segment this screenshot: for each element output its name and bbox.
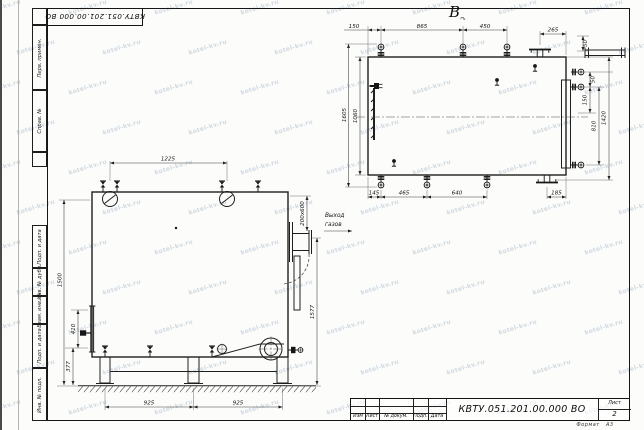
small-valve-icon: [533, 64, 537, 71]
dim-label: 925: [144, 400, 155, 406]
title-block: Изм Лист № докум. Подп. Дата КВТУ.051.20…: [350, 398, 630, 421]
dim-label: 50: [591, 76, 597, 84]
dim-label: 265: [548, 28, 559, 34]
small-valve-icon: [392, 159, 396, 166]
dim-label: 450: [480, 24, 491, 30]
dim-label: 200x600: [300, 201, 306, 226]
dim-label: 1420: [602, 110, 608, 125]
dim-label: 465: [399, 191, 410, 197]
burner-flange-icon: [259, 337, 284, 362]
drawing-sheet: kotel-kv.rukotel-kv.rukotel-kv.rukotel-k…: [0, 0, 644, 430]
valve-icon: [424, 175, 431, 188]
front-view-fittings: [100, 181, 303, 362]
dim-label: 145: [369, 191, 380, 197]
top-view-fittings: [370, 44, 584, 188]
valve-icon: [209, 346, 215, 357]
dim-label: 150: [583, 94, 589, 105]
dim-label: 925: [233, 400, 244, 406]
tb-header-izm: Изм: [351, 414, 365, 419]
gauge-nozzle-icon: [80, 330, 91, 335]
title-block-row-line: [351, 406, 446, 407]
valve-icon: [378, 44, 385, 57]
dim-label: 810: [592, 120, 598, 131]
dim-label: 150: [349, 24, 360, 30]
valve-icon: [255, 181, 261, 192]
dim-label: 50: [583, 40, 589, 48]
dim-label: 1060: [353, 108, 359, 123]
dim-label: 1225: [161, 157, 176, 163]
drain-valve-icon: [288, 347, 303, 353]
wall-fitting-icon: [370, 83, 383, 89]
tb-header-podp: Подп.: [413, 414, 428, 419]
dim-label: 1605: [342, 107, 348, 122]
tb-header-dokum: № докум.: [379, 414, 413, 419]
tb-header-list: Лист: [365, 414, 379, 419]
outlet-label: газов: [325, 222, 342, 228]
front-view-outline: [78, 192, 316, 393]
front-view: 1225 1500 410 377 925 925 1577 200x600 В…: [57, 157, 352, 411]
dim-label: 1577: [310, 304, 316, 319]
valve-icon: [571, 162, 584, 169]
dim-label: 410: [71, 323, 77, 334]
valve-icon: [102, 346, 108, 357]
document-number: КВТУ.051.201.00.000 ВО: [446, 399, 598, 420]
small-valve-icon: [495, 78, 499, 85]
valve-icon: [484, 175, 491, 188]
valve-icon: [219, 181, 225, 192]
valve-icon: [114, 181, 120, 192]
valve-icon: [147, 346, 153, 357]
dim-label: 377: [66, 361, 72, 372]
valve-icon: [100, 181, 106, 192]
valve-icon: [504, 44, 511, 57]
exhaust-duct: [283, 222, 312, 310]
format-note: Формат А3: [556, 422, 634, 428]
tb-header-data: Дата: [428, 414, 446, 419]
valve-icon: [378, 175, 385, 188]
flange-nozzle-icon: [536, 175, 558, 183]
outlet-label: Выход: [325, 213, 345, 219]
dim-label: 185: [551, 191, 562, 197]
technical-drawing: 150 865 450 265 50 50 150 810 1420 1605 …: [0, 0, 644, 430]
valve-icon: [460, 44, 467, 57]
top-view-outline: [356, 48, 625, 176]
dim-label: 865: [417, 24, 428, 30]
sheet-label: Лист: [598, 400, 631, 406]
dim-label: 1500: [57, 272, 63, 287]
dim-label: 640: [452, 191, 463, 197]
flange-nozzle-icon: [529, 50, 551, 58]
top-view: 150 865 450 265 50 50 150 810 1420 1605 …: [342, 24, 625, 199]
sheet-number: 2: [598, 410, 631, 418]
top-view-dimensions: 150 865 450 265 50 50 150 810 1420 1605 …: [342, 24, 613, 199]
